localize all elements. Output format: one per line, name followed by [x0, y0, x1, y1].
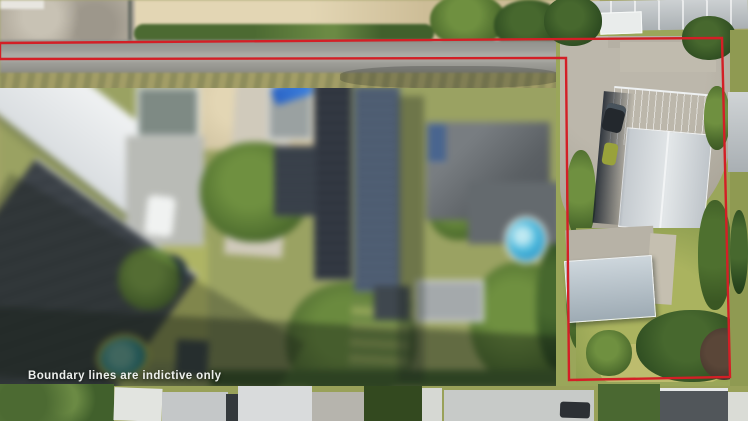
- aerial-photo: Boundary lines are indictive only: [0, 0, 748, 421]
- boundary-overlay: [0, 0, 748, 421]
- watermark-text: Boundary lines are indictive only: [28, 370, 221, 382]
- boundary-line: [0, 38, 730, 380]
